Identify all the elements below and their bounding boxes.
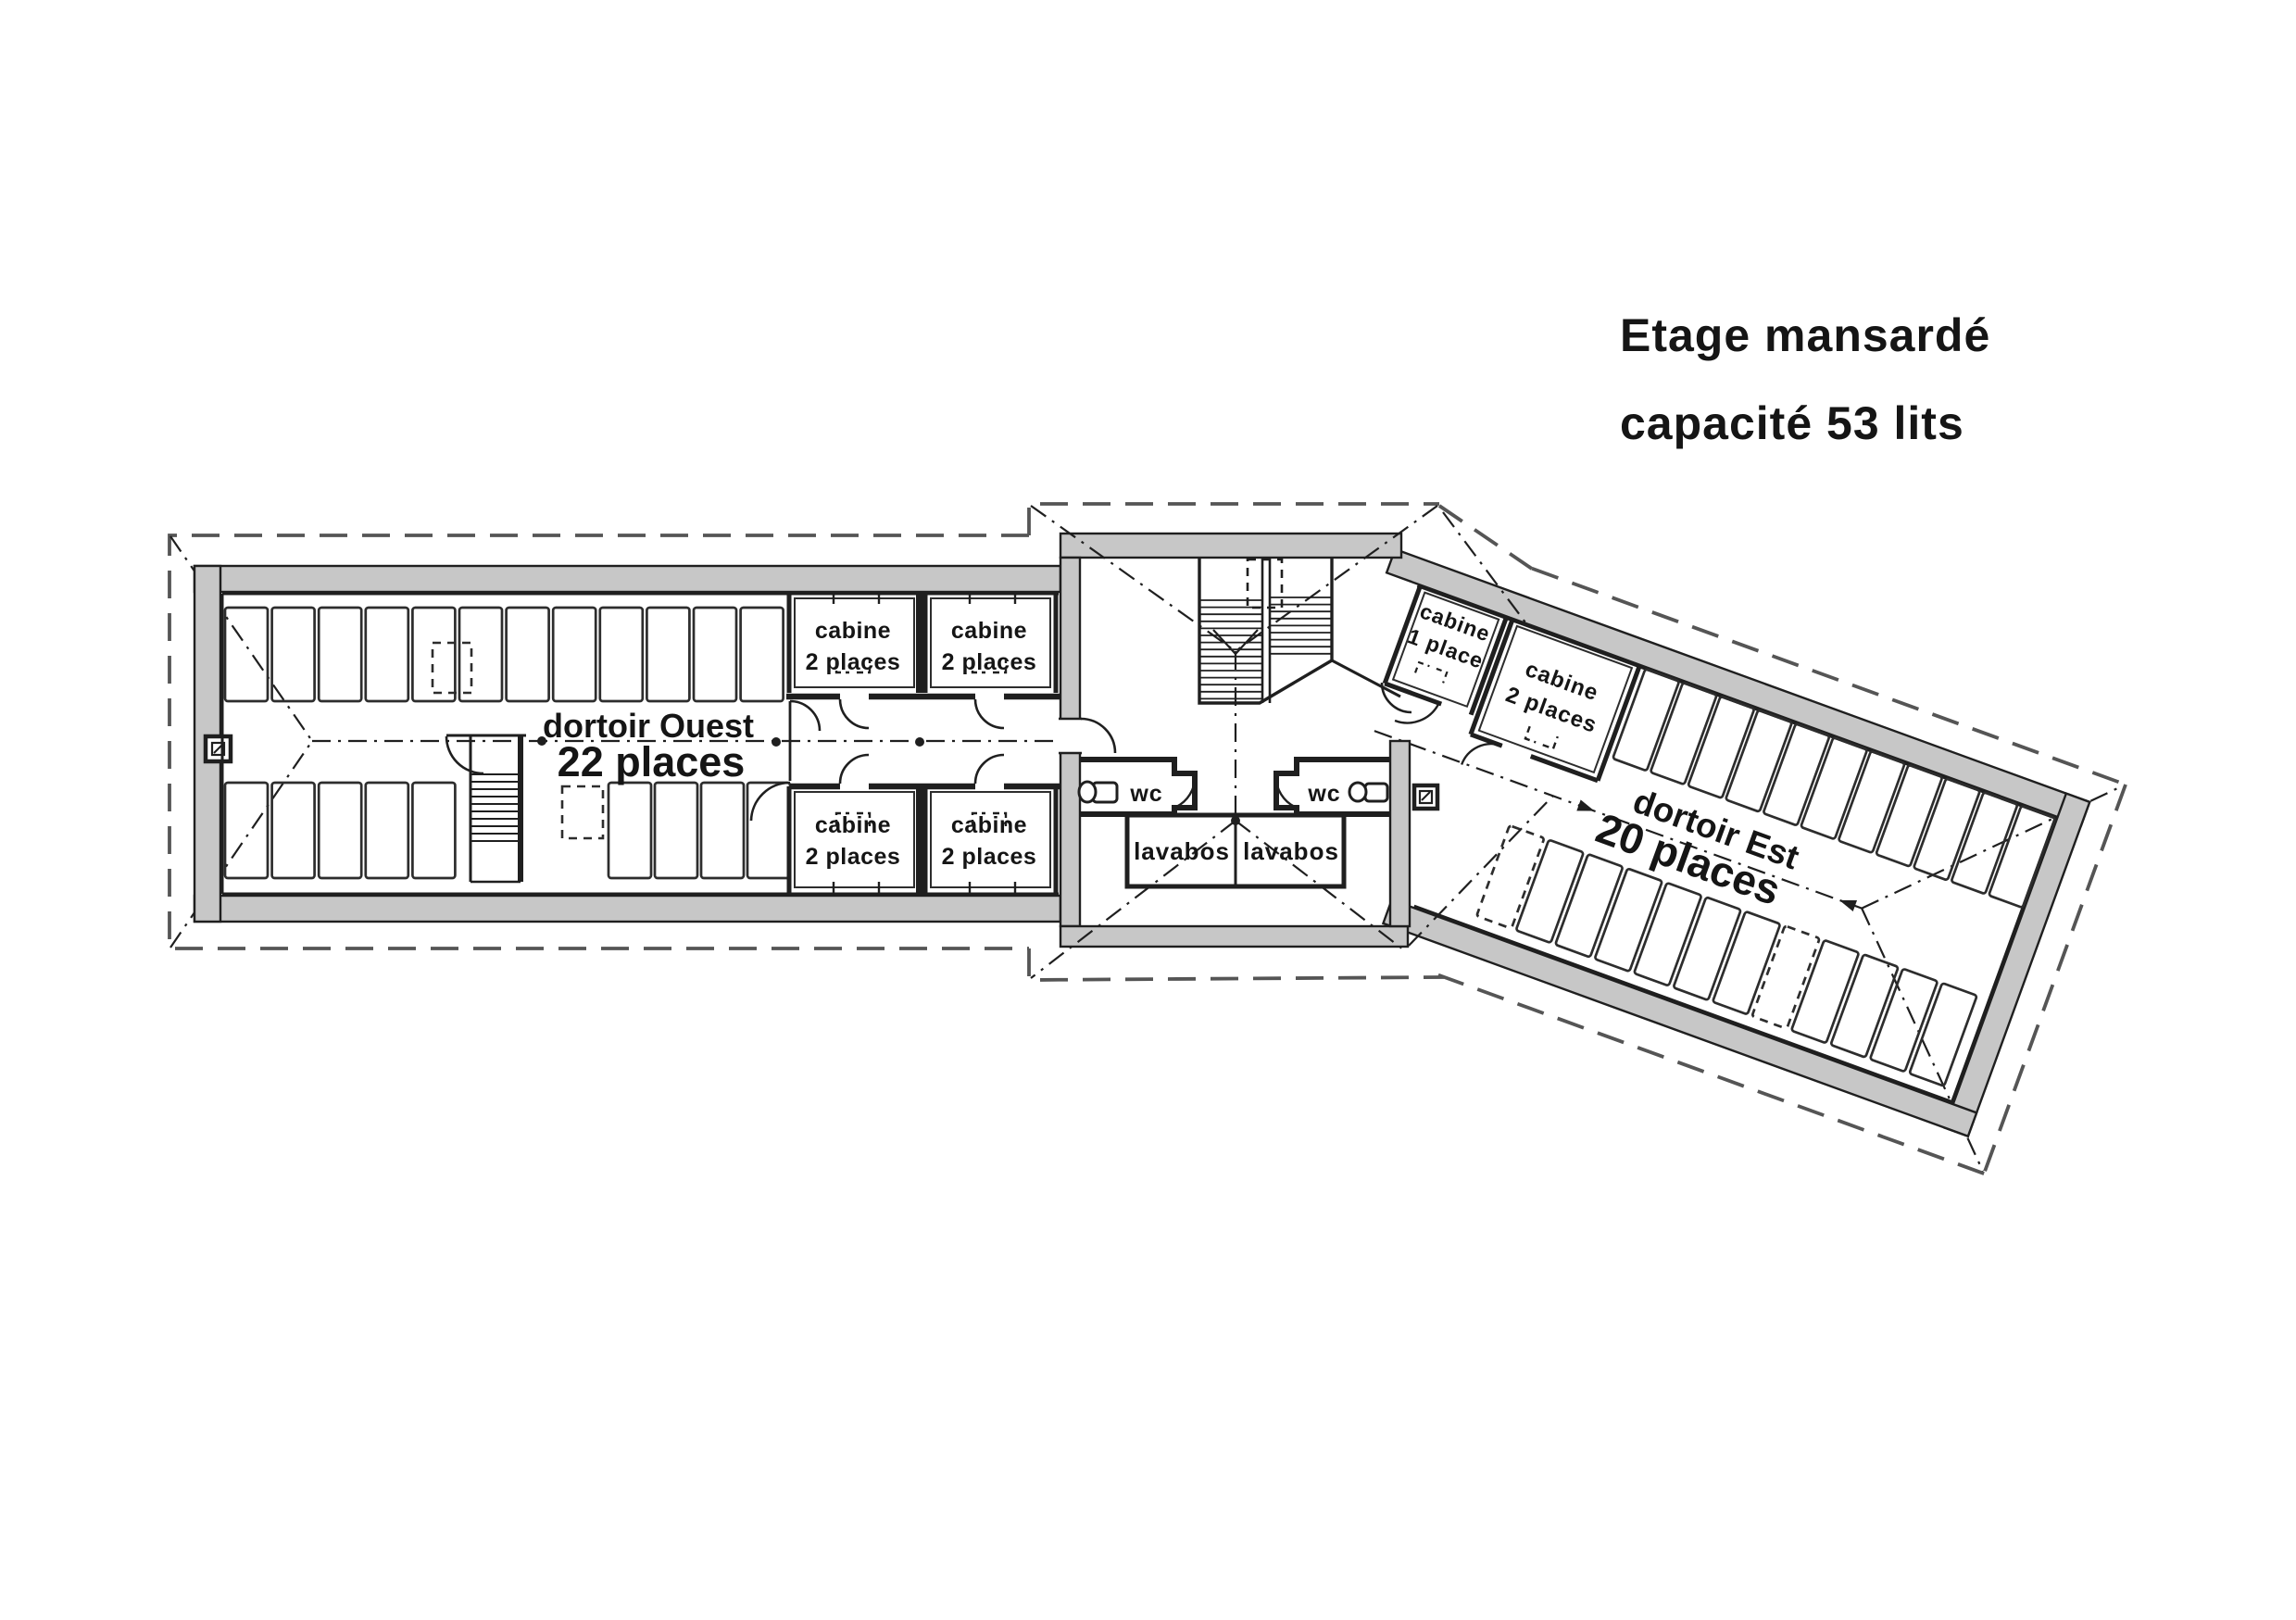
svg-text:22 places: 22 places	[558, 738, 746, 785]
svg-text:cabine: cabine	[815, 618, 891, 644]
svg-text:2 places: 2 places	[942, 649, 1037, 675]
svg-text:wc: wc	[1129, 781, 1162, 807]
svg-text:lavabos: lavabos	[1134, 837, 1230, 865]
svg-text:2 places: 2 places	[806, 844, 901, 870]
svg-text:Etage mansardé: Etage mansardé	[1620, 309, 1990, 361]
svg-text:2 places: 2 places	[806, 649, 901, 675]
svg-text:wc: wc	[1307, 781, 1340, 807]
svg-text:2 places: 2 places	[942, 844, 1037, 870]
svg-text:lavabos: lavabos	[1243, 837, 1339, 865]
svg-text:cabine: cabine	[815, 812, 891, 838]
svg-text:capacité 53 lits: capacité 53 lits	[1620, 397, 1964, 449]
svg-text:cabine: cabine	[951, 618, 1027, 644]
svg-text:cabine: cabine	[951, 812, 1027, 838]
